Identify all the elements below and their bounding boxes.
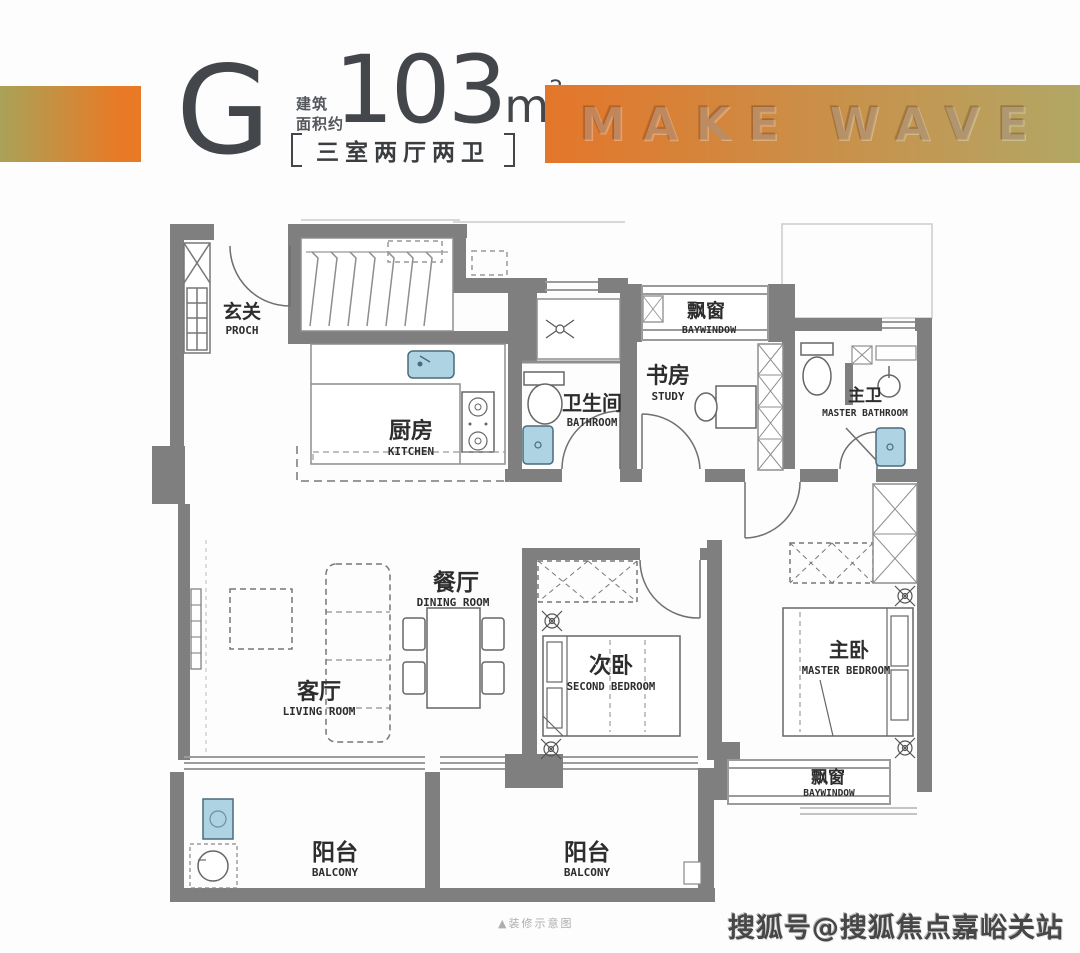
room-label-living-en: LIVING ROOM [283, 705, 356, 718]
second-bedroom-furniture [538, 561, 680, 736]
balcony-fixtures [190, 799, 701, 888]
study-fixtures [695, 344, 783, 470]
washing-machine [203, 799, 233, 839]
room-label-balcony-right-en: BALCONY [564, 866, 611, 879]
kitchen-sink [408, 351, 454, 378]
room-label-second-bedroom-cn: 次卧 [589, 653, 633, 679]
bathroom-sink [523, 426, 553, 464]
shower-area [537, 299, 620, 359]
room-label-bathroom-en: BATHROOM [567, 417, 618, 429]
dining-room-furniture [403, 608, 504, 708]
room-label-study-cn: 书房 [646, 363, 690, 389]
utility-box [684, 862, 701, 884]
toilet-tank [524, 372, 564, 385]
room-label-study-en: STUDY [651, 390, 684, 403]
chair [695, 393, 717, 421]
room-label-kitchen-cn: 厨房 [389, 418, 433, 444]
dining-chair [482, 662, 504, 694]
compass-icon [541, 739, 561, 759]
room-label-dining-cn: 餐厅 [433, 570, 479, 596]
living-room-furniture [191, 540, 390, 752]
entry-closet [184, 243, 210, 353]
room-label-second-bedroom-en: SECOND BEDROOM [567, 681, 656, 693]
room-label-baywindow-bottom-cn: 飘窗 [811, 767, 845, 788]
tv-cabinet [191, 589, 201, 669]
dining-table [427, 608, 480, 708]
kitchen-fixtures [297, 344, 510, 481]
room-label-dining-en: DINING ROOM [417, 596, 490, 609]
compass-icon [895, 586, 915, 606]
dining-chair [403, 662, 425, 694]
room-label-entry-en: PROCH [225, 324, 258, 337]
room-label-master-bath-en: MASTER BATHROOM [822, 408, 908, 419]
room-label-balcony-right-cn: 阳台 [564, 839, 610, 866]
dining-chair [482, 618, 504, 650]
room-label-master-bath-cn: 主卫 [848, 385, 882, 406]
kitchen-stove [462, 392, 494, 452]
room-label-bathroom-cn: 卫生间 [562, 391, 622, 415]
master-sink [876, 428, 905, 466]
master-bedroom-furniture [783, 484, 917, 736]
floor-plan: 玄关 PROCH 厨房 KITCHEN 卫生间 BATHROOM 书房 STUD… [0, 0, 1080, 953]
room-label-master-bedroom-cn: 主卧 [829, 638, 869, 662]
dining-chair [403, 618, 425, 650]
room-label-balcony-left-cn: 阳台 [312, 839, 358, 866]
room-label-entry-cn: 玄关 [223, 300, 261, 323]
compass-icon [895, 738, 915, 758]
wardrobe [790, 543, 873, 583]
room-label-kitchen-en: KITCHEN [388, 445, 434, 458]
coffee-table [230, 589, 292, 649]
room-label-baywindow-top-en: BAYWINDOW [682, 325, 737, 336]
bathroom-fixtures [522, 299, 620, 464]
watermark: 搜狐号@搜狐焦点嘉峪关站 [728, 906, 1064, 945]
wardrobe [538, 561, 637, 602]
room-label-balcony-left-en: BALCONY [312, 866, 359, 879]
room-label-living-cn: 客厅 [297, 679, 341, 705]
toilet-bowl [528, 384, 562, 424]
plan-note: ▲装修示意图 [498, 915, 573, 931]
master-toilet [803, 357, 831, 395]
room-label-baywindow-bottom-en: BAYWINDOW [803, 788, 855, 799]
desk [716, 386, 756, 428]
room-label-master-bedroom-en: MASTER BEDROOM [802, 665, 891, 677]
room-label-baywindow-top-cn: 飘窗 [687, 299, 725, 322]
laundry-sink [198, 851, 228, 881]
page: G 建筑 面积约 103m2 三室两厅两卫 MAKE WAVE [0, 0, 1080, 953]
compass-icon [542, 611, 562, 631]
